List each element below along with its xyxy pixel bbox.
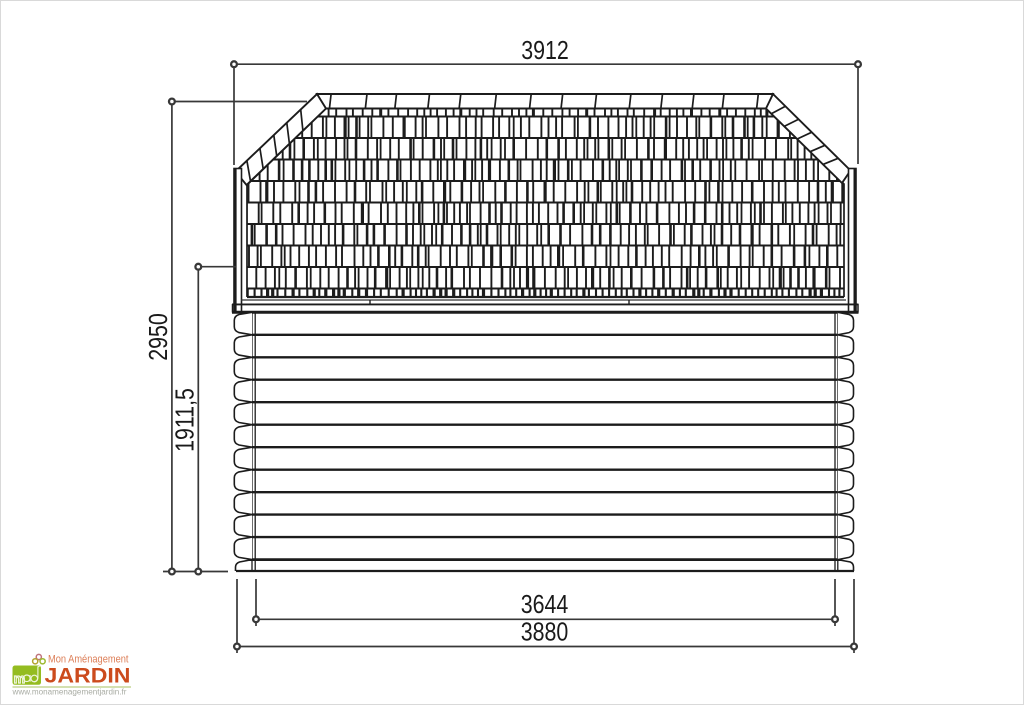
svg-text:2950: 2950 (144, 313, 172, 361)
svg-text:3912: 3912 (521, 36, 569, 64)
svg-text:www.monamenagementjardin.fr: www.monamenagementjardin.fr (11, 688, 126, 697)
svg-text:3644: 3644 (521, 590, 569, 618)
svg-text:1911,5: 1911,5 (171, 388, 199, 452)
svg-text:3880: 3880 (521, 618, 569, 646)
svg-text:JARDIN: JARDIN (45, 664, 131, 688)
